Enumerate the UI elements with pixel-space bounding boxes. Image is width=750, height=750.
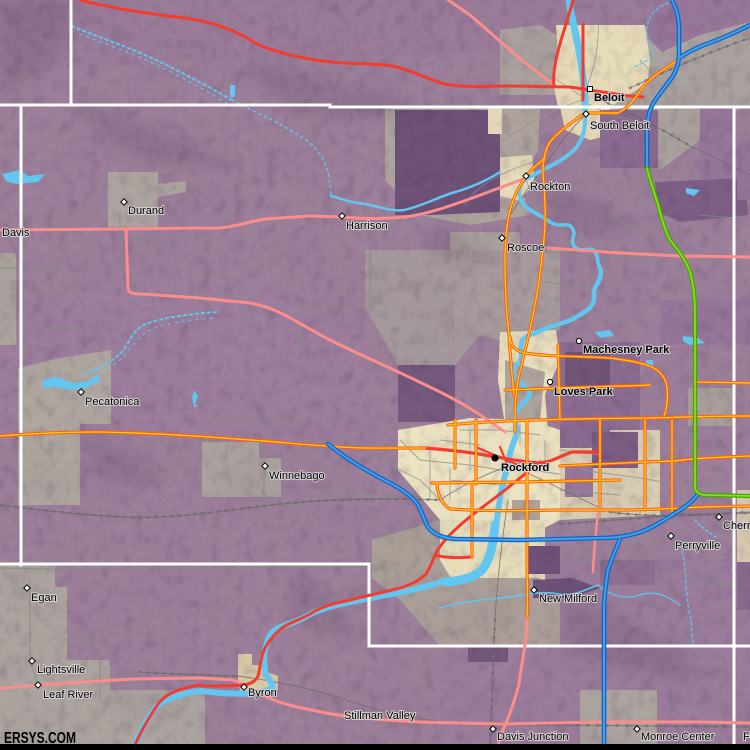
svg-text:Egan: Egan (31, 592, 57, 604)
svg-text:Stillman Valley: Stillman Valley (344, 710, 416, 722)
svg-text:Davis Junction: Davis Junction (497, 731, 569, 743)
svg-text:Roscoe: Roscoe (507, 242, 544, 254)
svg-text:Rockton: Rockton (530, 181, 570, 193)
svg-text:South Beloit: South Beloit (590, 120, 649, 132)
svg-text:Lightsville: Lightsville (37, 664, 85, 676)
svg-text:Pecatonica: Pecatonica (85, 396, 140, 408)
svg-text:Durand: Durand (128, 205, 164, 217)
svg-text:Beloit: Beloit (594, 92, 625, 104)
svg-text:F: F (743, 731, 750, 743)
svg-text:Rockford: Rockford (501, 462, 549, 474)
svg-text:Davis: Davis (2, 227, 30, 239)
svg-text:Leaf River: Leaf River (43, 689, 93, 701)
svg-text:Harrison: Harrison (346, 220, 388, 232)
svg-text:Byron: Byron (248, 687, 277, 699)
svg-text:New Milford: New Milford (539, 593, 597, 605)
svg-text:Winnebago: Winnebago (269, 470, 325, 482)
svg-text:Machesney Park: Machesney Park (583, 344, 670, 356)
svg-text:Cherry: Cherry (723, 520, 750, 532)
svg-text:Loves Park: Loves Park (554, 386, 614, 398)
svg-text:Monroe Center: Monroe Center (641, 731, 715, 743)
svg-text:Perryville: Perryville (675, 540, 720, 552)
